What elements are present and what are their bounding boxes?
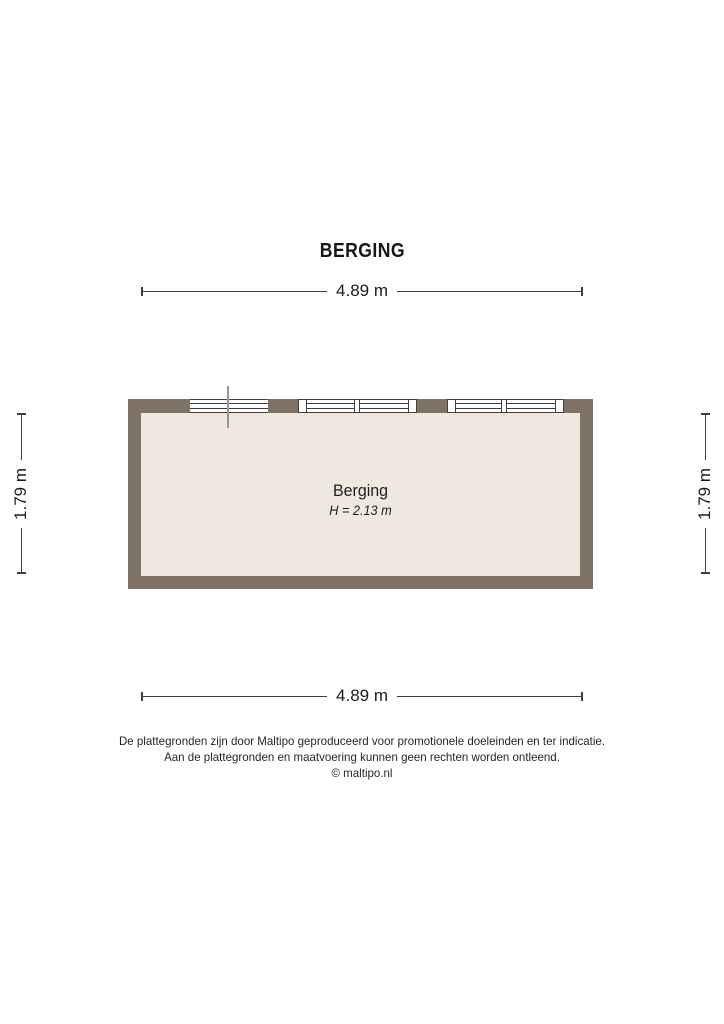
top-wall	[128, 399, 593, 413]
window-frame-cap	[555, 399, 564, 413]
dimension-line	[143, 291, 327, 292]
dimension-line	[705, 528, 706, 573]
floorplan-room-berging: Berging H = 2.13 m	[128, 399, 593, 589]
dimension-left-label: 1.79 m	[11, 460, 31, 528]
disclaimer-line-1: De plattegronden zijn door Maltipo gepro…	[14, 733, 709, 749]
copyright-line: © maltipo.nl	[14, 765, 709, 781]
window	[507, 399, 555, 413]
window	[190, 399, 268, 413]
dimension-line	[397, 696, 581, 697]
dimension-line	[21, 528, 22, 573]
dimension-top-label: 4.89 m	[327, 281, 397, 301]
dimension-top: 4.89 m	[141, 281, 583, 301]
window-frame-cap	[408, 399, 417, 413]
footer-disclaimer: De plattegronden zijn door Maltipo gepro…	[0, 733, 724, 781]
dimension-tick	[581, 692, 583, 701]
dimension-tick	[701, 572, 710, 574]
room-label: Berging H = 2.13 m	[128, 481, 593, 518]
page-title-text: BERGING	[319, 240, 404, 263]
dimension-right-label: 1.79 m	[695, 460, 715, 528]
section-marker-line	[227, 386, 229, 428]
wall-pier	[417, 399, 447, 413]
window	[456, 399, 501, 413]
dimension-line	[397, 291, 581, 292]
disclaimer-line-2: Aan de plattegronden en maatvoering kunn…	[14, 749, 709, 765]
window	[360, 399, 408, 413]
room-name: Berging	[142, 481, 579, 501]
dimension-bottom: 4.89 m	[141, 686, 583, 706]
dimension-line	[143, 696, 327, 697]
window	[307, 399, 354, 413]
dimension-left: 1.79 m	[12, 413, 30, 574]
room-height-label: H = 2.13 m	[142, 503, 579, 518]
dimension-line	[705, 415, 706, 460]
wall-corner-left	[128, 399, 190, 413]
window-frame-cap	[298, 399, 307, 413]
wall-pier	[268, 399, 298, 413]
wall-corner-right	[564, 399, 593, 413]
dimension-right: 1.79 m	[696, 413, 714, 574]
floorplan-page: BERGING 4.89 m 1.79 m 1.79 m	[0, 0, 724, 1024]
dimension-tick	[17, 572, 26, 574]
page-title: BERGING	[0, 240, 724, 263]
dimension-tick	[581, 287, 583, 296]
window-frame-cap	[447, 399, 456, 413]
dimension-line	[21, 415, 22, 460]
dimension-bottom-label: 4.89 m	[327, 686, 397, 706]
